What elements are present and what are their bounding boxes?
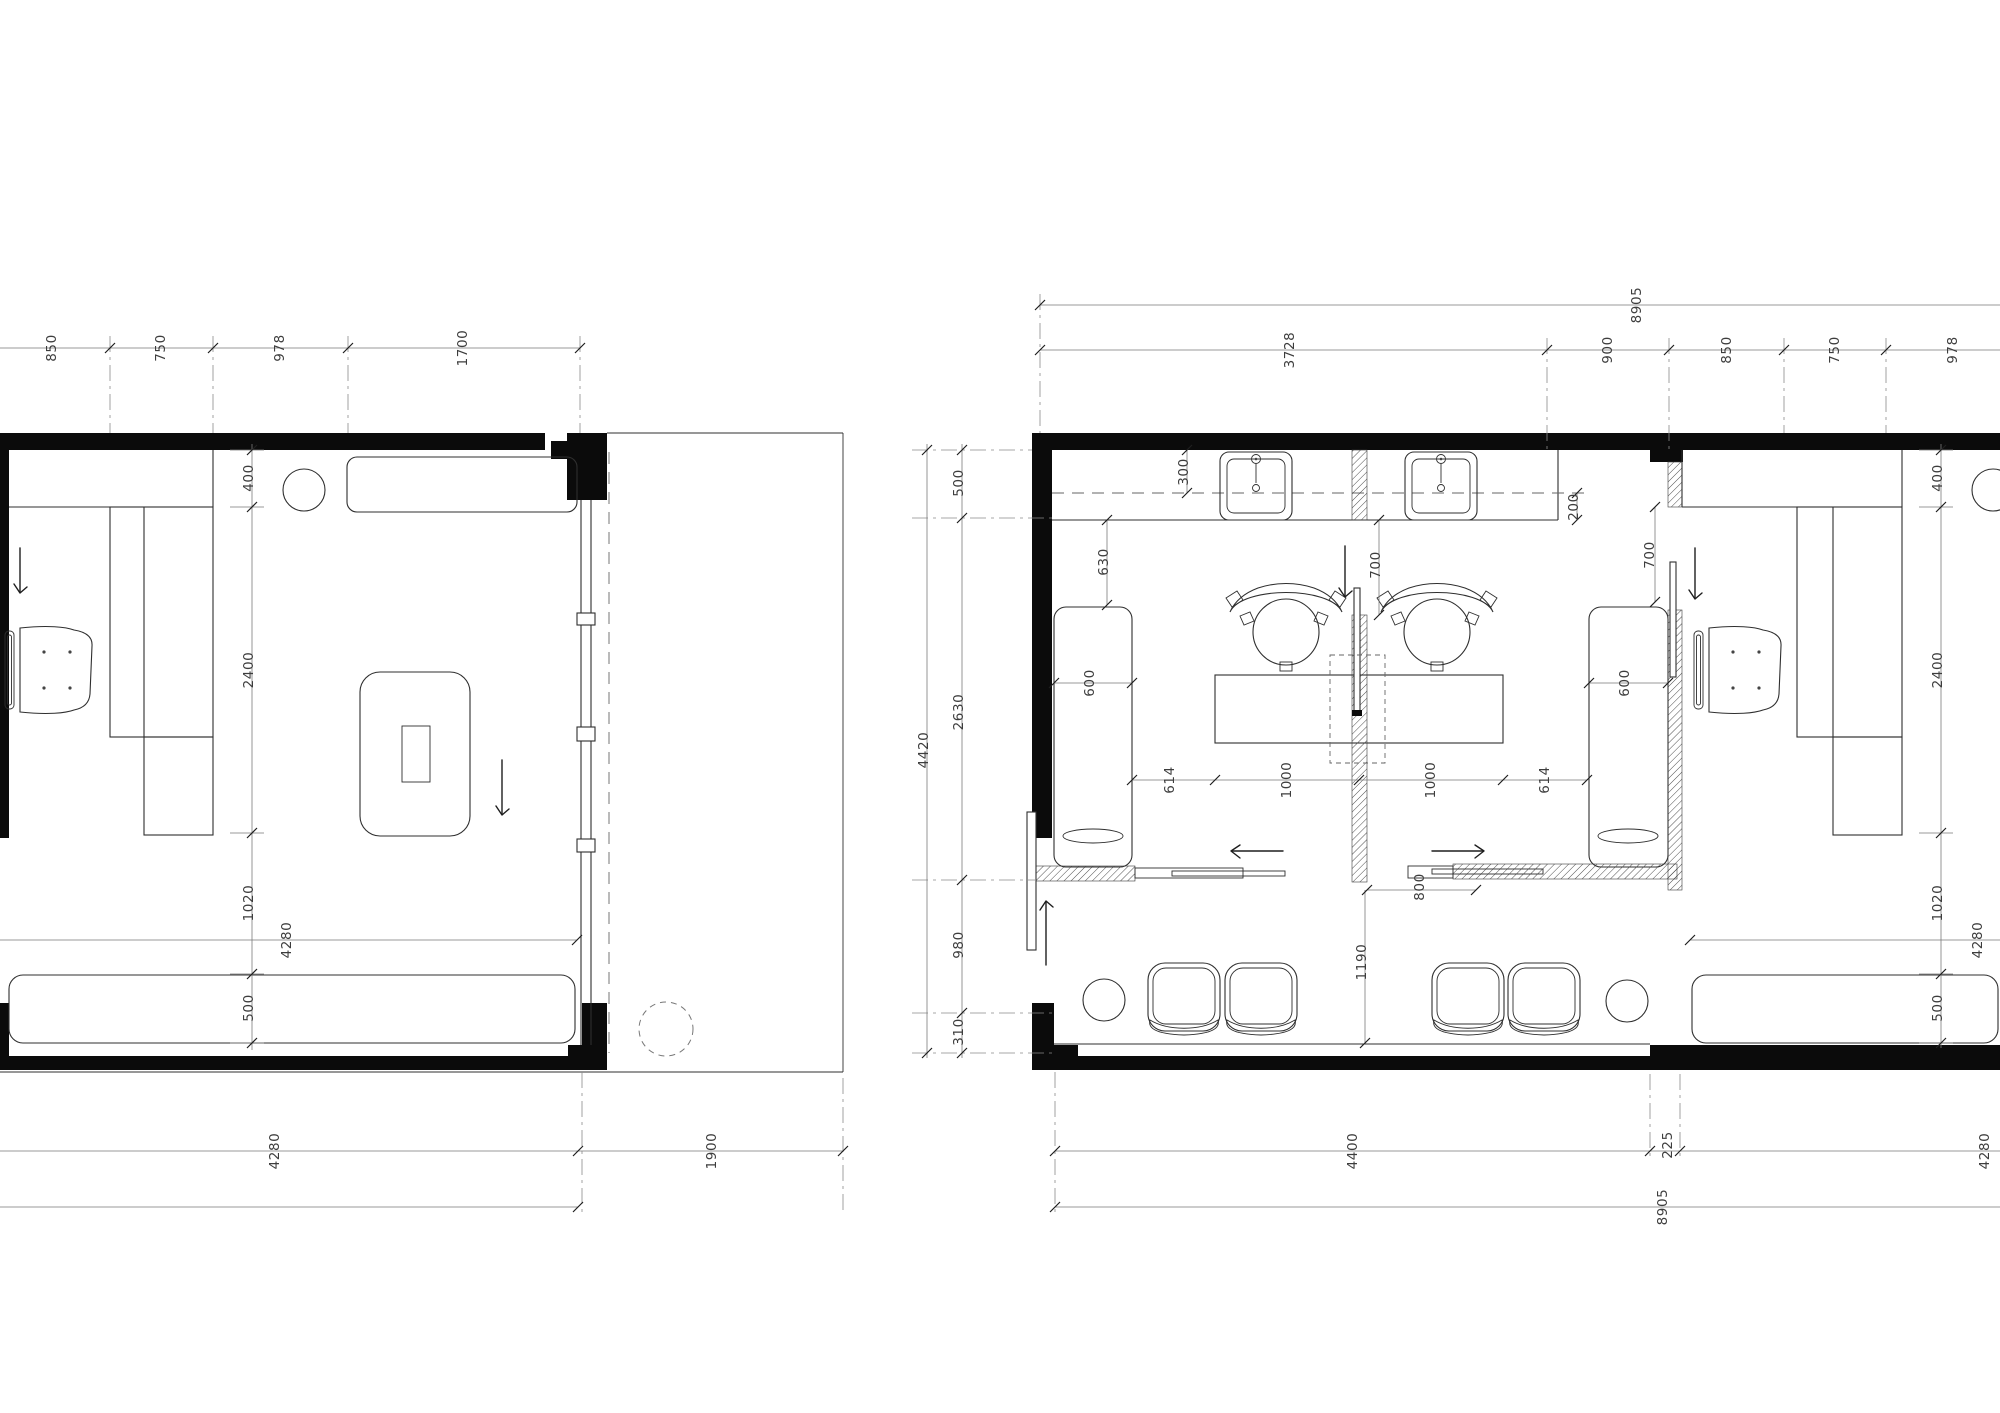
dim-label: 200 bbox=[1566, 493, 1582, 521]
corner-post bbox=[567, 433, 607, 500]
dim-label: 225 bbox=[1660, 1131, 1676, 1159]
dim-label: 1000 bbox=[1279, 762, 1295, 799]
dim-label: 400 bbox=[1930, 464, 1946, 492]
dim-label: 500 bbox=[1930, 994, 1946, 1022]
dim-label: 1900 bbox=[704, 1133, 720, 1170]
direction-arrows bbox=[1040, 546, 1702, 965]
side-table-circle bbox=[1606, 980, 1648, 1022]
dimensions: 850 750 978 1700 400 2400 1020 500 4280 … bbox=[0, 330, 848, 1215]
entry-door-leaf bbox=[1027, 812, 1036, 950]
glass-door-panel bbox=[1354, 588, 1360, 712]
side-table-circle bbox=[1083, 979, 1125, 1021]
dim-label: 4280 bbox=[1970, 922, 1986, 959]
coffee-table bbox=[360, 672, 470, 836]
sideboard bbox=[347, 457, 577, 512]
dim-label: 630 bbox=[1096, 548, 1112, 576]
dim-label: 4280 bbox=[267, 1133, 283, 1170]
dim-label: 4400 bbox=[1345, 1133, 1361, 1170]
mullion bbox=[577, 727, 595, 741]
glass-wall bbox=[577, 452, 609, 1053]
waiting-chair bbox=[1508, 963, 1580, 1035]
dim-label: 8905 bbox=[1629, 287, 1645, 324]
office-chair bbox=[5, 627, 92, 714]
left-plan: 850 750 978 1700 400 2400 1020 500 4280 … bbox=[0, 330, 848, 1215]
dim-label: 4420 bbox=[916, 732, 932, 769]
dim-label: 1700 bbox=[455, 330, 471, 367]
planter-circle bbox=[639, 1002, 693, 1056]
dim-label: 4280 bbox=[1977, 1133, 1993, 1170]
back-room bbox=[1682, 450, 2000, 1043]
glass-door-panel bbox=[1670, 562, 1676, 677]
mullion bbox=[577, 613, 595, 625]
waiting-chair bbox=[1225, 963, 1297, 1035]
waiting-chair bbox=[1148, 963, 1220, 1035]
dim-label: 614 bbox=[1537, 766, 1553, 794]
dim-label: 850 bbox=[1719, 336, 1735, 364]
corner-post bbox=[582, 1003, 607, 1070]
sink bbox=[1405, 452, 1477, 520]
dim-label: 1020 bbox=[241, 885, 257, 922]
dim-label: 4280 bbox=[279, 922, 295, 959]
dim-label: 700 bbox=[1368, 551, 1384, 579]
floorplan-canvas: 850 750 978 1700 400 2400 1020 500 4280 … bbox=[0, 0, 2000, 1413]
desk bbox=[9, 450, 213, 835]
terrace bbox=[0, 433, 843, 1072]
mullion bbox=[577, 839, 595, 852]
dim-label: 850 bbox=[44, 334, 60, 362]
dim-label: 978 bbox=[1945, 336, 1961, 364]
dim-label: 2400 bbox=[241, 652, 257, 689]
right-plan: 8905 3728 900 850 750 978 4420 500 2630 … bbox=[912, 287, 2000, 1226]
dim-label: 1020 bbox=[1930, 885, 1946, 922]
dim-label: 750 bbox=[1827, 336, 1843, 364]
styling-chair bbox=[1226, 584, 1346, 672]
dim-label: 2400 bbox=[1930, 652, 1946, 689]
styling-chair bbox=[1377, 584, 1497, 672]
dim-label: 614 bbox=[1162, 766, 1178, 794]
salon-counter bbox=[1052, 450, 1590, 520]
waiting-chair bbox=[1432, 963, 1504, 1035]
dim-label: 3728 bbox=[1282, 332, 1298, 369]
dim-label: 310 bbox=[951, 1018, 967, 1046]
dim-label: 800 bbox=[1412, 873, 1428, 901]
floor-plan-drawing: 850 750 978 1700 400 2400 1020 500 4280 … bbox=[0, 0, 2000, 1413]
dim-label: 1000 bbox=[1423, 762, 1439, 799]
stool-circle bbox=[1972, 469, 2000, 511]
sink bbox=[1220, 452, 1292, 520]
dim-label: 400 bbox=[241, 464, 257, 492]
dim-label: 900 bbox=[1600, 336, 1616, 364]
dim-label: 500 bbox=[951, 469, 967, 497]
styling-bench-left bbox=[1054, 607, 1132, 867]
dim-label: 978 bbox=[272, 334, 288, 362]
dim-label: 600 bbox=[1617, 669, 1633, 697]
bench bbox=[1692, 975, 1998, 1043]
partition-header bbox=[1650, 450, 1683, 462]
bench bbox=[9, 975, 575, 1043]
dim-label: 300 bbox=[1176, 458, 1192, 486]
dim-label: 2630 bbox=[951, 694, 967, 731]
dim-label: 8905 bbox=[1655, 1189, 1671, 1226]
direction-arrows bbox=[14, 548, 509, 815]
dim-label: 1190 bbox=[1354, 944, 1370, 981]
stool-circle bbox=[283, 469, 325, 511]
dim-label: 600 bbox=[1082, 669, 1098, 697]
dim-label: 980 bbox=[951, 931, 967, 959]
styling-bench-right bbox=[1589, 607, 1668, 867]
dim-label: 700 bbox=[1642, 541, 1658, 569]
dim-label: 750 bbox=[153, 334, 169, 362]
office-chair bbox=[1694, 627, 1781, 714]
dimensions: 8905 3728 900 850 750 978 4420 500 2630 … bbox=[912, 287, 2000, 1226]
dim-label: 500 bbox=[241, 994, 257, 1022]
